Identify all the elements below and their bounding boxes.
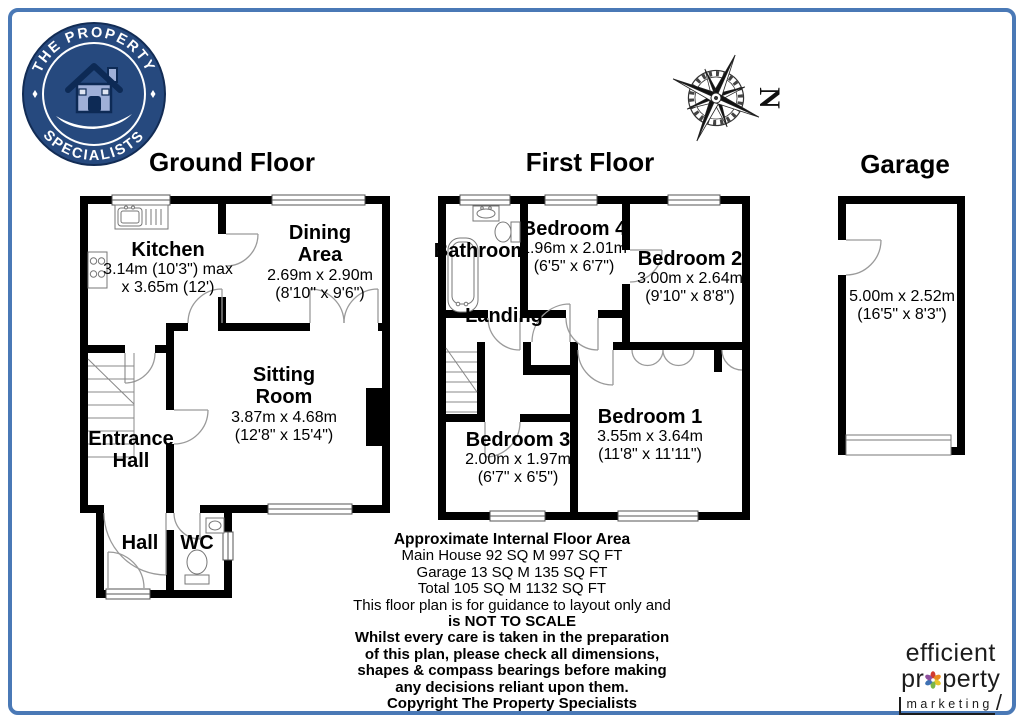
epm-word-marketing-row: marketing/ bbox=[899, 692, 1002, 715]
bedroom1-name: Bedroom 1 bbox=[597, 406, 703, 428]
room-label-bedroom3: Bedroom 3 2.00m x 1.97m (6'7" x 6'5") bbox=[465, 429, 571, 487]
room-label-garage-dims: 5.00m x 2.52m (16'5" x 8'3") bbox=[849, 288, 955, 324]
room-label-bathroom: Bathroom bbox=[434, 240, 528, 262]
sitting-dims-imperial: (12'8" x 15'4") bbox=[231, 427, 337, 445]
kitchen-dims-metric: 3.14m (10'3") max bbox=[103, 261, 233, 279]
main-house-area: Main House 92 SQ M 997 SQ FT bbox=[353, 548, 671, 564]
sitting-dims-metric: 3.87m x 4.68m bbox=[231, 409, 337, 427]
disclaimer-line2: of this plan, please check all dimension… bbox=[353, 647, 671, 663]
wardrobe-doors bbox=[632, 350, 694, 366]
room-label-dining: Dining Area 2.69m x 2.90m (8'10" x 9'6") bbox=[267, 222, 373, 303]
room-label-wc: WC bbox=[180, 532, 213, 554]
kitchen-sink-icon bbox=[115, 205, 168, 229]
room-label-bedroom1: Bedroom 1 3.55m x 3.64m (11'8" x 11'11") bbox=[597, 406, 703, 464]
copyright-line: Copyright The Property Specialists bbox=[353, 696, 671, 712]
bedroom2-name: Bedroom 2 bbox=[637, 248, 743, 270]
total-area: Total 105 SQ M 1132 SQ FT bbox=[353, 581, 671, 597]
ground-floor-title: Ground Floor bbox=[149, 147, 315, 178]
epm-slash: / bbox=[996, 690, 1002, 715]
disclaimer-line3: shapes & compass bearings before making bbox=[353, 663, 671, 679]
compass-north-label: N bbox=[753, 87, 786, 109]
dining-dims-imperial: (8'10" x 9'6") bbox=[267, 285, 373, 303]
dining-name-line1: Dining bbox=[267, 222, 373, 244]
guidance-line: This floor plan is for guidance to layou… bbox=[353, 598, 671, 614]
epm-word-property: prperty bbox=[899, 667, 1002, 692]
bedroom4-dims-metric: 1.96m x 2.01m bbox=[521, 240, 627, 258]
wc-basin-icon bbox=[206, 518, 224, 533]
room-label-entrance-hall: Entrance Hall bbox=[88, 428, 174, 473]
chimney-stub bbox=[714, 350, 722, 372]
epm-property-prefix: pr bbox=[901, 665, 924, 693]
garage-plan bbox=[832, 192, 972, 464]
entrance-hall-line1: Entrance bbox=[88, 428, 174, 450]
dining-name-line2: Area bbox=[267, 244, 373, 266]
landing-name: Landing bbox=[465, 305, 543, 327]
compass-rose-icon: N bbox=[660, 40, 790, 158]
garage-walls bbox=[838, 196, 965, 455]
not-to-scale-line: is NOT TO SCALE bbox=[353, 614, 671, 630]
room-label-kitchen: Kitchen 3.14m (10'3") max x 3.65m (12') bbox=[103, 239, 233, 297]
bathroom-sink-icon bbox=[473, 206, 499, 221]
epm-property-suffix: perty bbox=[942, 665, 1000, 693]
room-label-hall: Hall bbox=[122, 532, 159, 554]
first-stairs bbox=[446, 348, 477, 412]
bathroom-name: Bathroom bbox=[434, 240, 528, 262]
disclaimer-line1: Whilst every care is taken in the prepar… bbox=[353, 630, 671, 646]
sitting-name-line2: Room bbox=[231, 386, 337, 408]
bedroom1-dims-metric: 3.55m x 3.64m bbox=[597, 428, 703, 446]
sitting-name-line1: Sitting bbox=[231, 364, 337, 386]
efficient-property-marketing-logo: efficient prperty marketing/ bbox=[899, 641, 1002, 715]
disclaimer-line4: any decisions reliant upon them. bbox=[353, 680, 671, 696]
floor-area-title: Approximate Internal Floor Area bbox=[353, 532, 671, 548]
wc-name: WC bbox=[180, 532, 213, 554]
bedroom2-dims-imperial: (9'10" x 8'8") bbox=[637, 288, 743, 306]
bathroom-toilet-icon bbox=[495, 222, 520, 242]
room-label-sitting: Sitting Room 3.87m x 4.68m (12'8" x 15'4… bbox=[231, 364, 337, 445]
room-label-bedroom4: Bedroom 4 1.96m x 2.01m (6'5" x 6'7") bbox=[521, 218, 627, 276]
garage-dims-metric: 5.00m x 2.52m bbox=[849, 288, 955, 306]
room-label-landing: Landing bbox=[465, 305, 543, 327]
pinwheel-icon bbox=[924, 671, 942, 689]
property-specialists-logo: THE PROPERTY SPECIALISTS bbox=[20, 20, 168, 168]
garage-title: Garage bbox=[860, 149, 950, 180]
bedroom4-dims-imperial: (6'5" x 6'7") bbox=[521, 258, 627, 276]
kitchen-dims-metric2: x 3.65m (12') bbox=[103, 279, 233, 297]
bedroom4-name: Bedroom 4 bbox=[521, 218, 627, 240]
bedroom3-dims-metric: 2.00m x 1.97m bbox=[465, 451, 571, 469]
chimney-breast bbox=[366, 388, 382, 446]
wc-toilet-icon bbox=[185, 550, 209, 584]
hall-name: Hall bbox=[122, 532, 159, 554]
garage-door-arc bbox=[846, 240, 881, 275]
garage-area: Garage 13 SQ M 135 SQ FT bbox=[353, 565, 671, 581]
dining-dims-metric: 2.69m x 2.90m bbox=[267, 267, 373, 285]
ground-wall-openings bbox=[104, 505, 200, 513]
epm-word-marketing: marketing bbox=[899, 697, 994, 715]
bedroom3-dims-imperial: (6'7" x 6'5") bbox=[465, 469, 571, 487]
epm-word-efficient: efficient bbox=[899, 641, 1002, 666]
entrance-hall-line2: Hall bbox=[88, 450, 174, 472]
floorplan-page: THE PROPERTY SPECIALISTS bbox=[0, 0, 1024, 723]
garage-up-and-over-door bbox=[846, 435, 951, 455]
garage-dims-imperial: (16'5" x 8'3") bbox=[849, 306, 955, 324]
bedroom1-dims-imperial: (11'8" x 11'11") bbox=[597, 446, 703, 464]
bedroom3-name: Bedroom 3 bbox=[465, 429, 571, 451]
room-label-bedroom2: Bedroom 2 3.00m x 2.64m (9'10" x 8'8") bbox=[637, 248, 743, 306]
floor-area-disclaimer: Approximate Internal Floor Area Main Hou… bbox=[353, 532, 671, 712]
kitchen-name: Kitchen bbox=[103, 239, 233, 261]
bedroom2-dims-metric: 3.00m x 2.64m bbox=[637, 270, 743, 288]
first-floor-title: First Floor bbox=[526, 147, 655, 178]
